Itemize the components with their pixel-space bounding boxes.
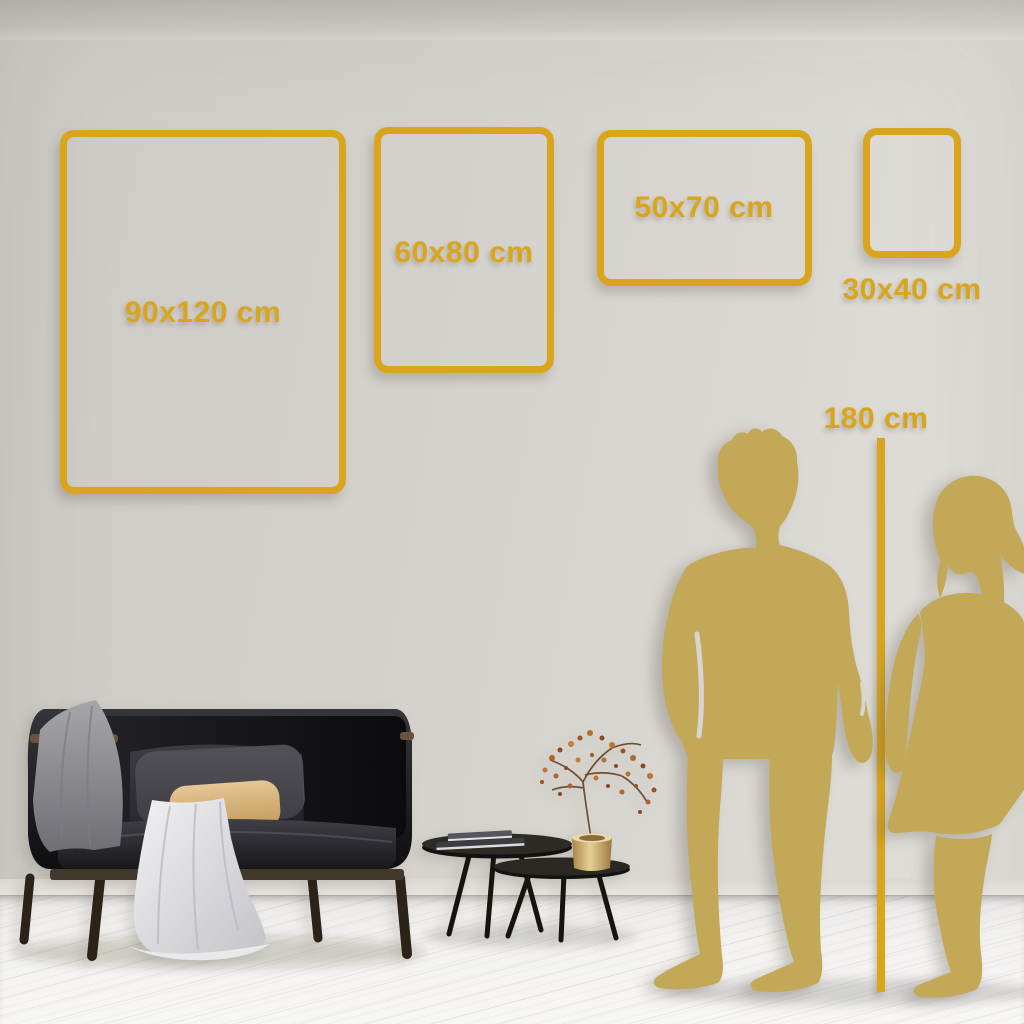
frame-label-90x120: 90x120 cm [125, 296, 281, 330]
height-reference-label: 180 cm [824, 402, 929, 436]
woman-silhouette [885, 476, 1024, 998]
size-guide-scene: 90x120 cm 60x80 cm 50x70 cm 30x40 cm 180… [0, 0, 1024, 1024]
hand-gap-highlight [862, 684, 864, 714]
frame-label-30x40: 30x40 cm [842, 273, 981, 307]
frame-30x40 [863, 128, 961, 258]
man-silhouette [654, 428, 873, 992]
frame-label-60x80: 60x80 cm [394, 236, 533, 270]
frame-label-50x70: 50x70 cm [634, 191, 773, 225]
